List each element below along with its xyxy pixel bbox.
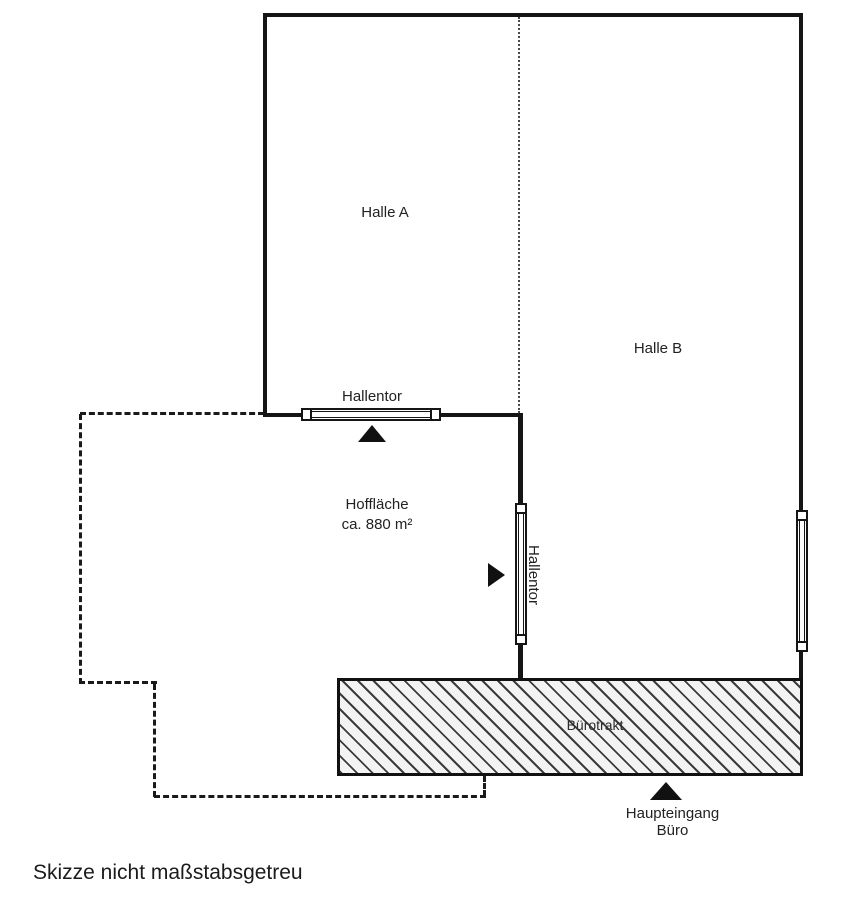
gate-cap-bottom [796, 641, 808, 652]
floor-plan-canvas: Halle A Halle B Hoffläche ca. 880 m² Hal… [0, 0, 850, 900]
courtyard-area-value: ca. 880 m² [342, 516, 413, 533]
office-wing-hatched-area: Bürotrakt [337, 678, 803, 776]
entrance-label-line1: Haupteingang [626, 805, 719, 822]
hall-divider-dotted-line [518, 17, 520, 413]
courtyard-label: Hoffläche ca. 880 m² [312, 495, 442, 535]
gate-symbol-top [301, 408, 441, 421]
property-boundary-dashed-step-v [153, 684, 156, 797]
property-boundary-dashed-bottom [154, 795, 486, 798]
courtyard-name: Hoffläche [345, 496, 408, 513]
gate-track [799, 517, 805, 645]
hallentor-top-label: Hallentor [322, 388, 422, 405]
gate-side-arrow-right-icon [488, 563, 505, 587]
gate-cap-bottom [515, 634, 527, 645]
gate-cap-top [515, 503, 527, 514]
halle-b-label: Halle B [608, 340, 708, 357]
gate-top-arrow-up-icon [358, 425, 386, 442]
entrance-label-line2: Büro [657, 822, 689, 839]
gate-cap-top [796, 510, 808, 521]
property-boundary-dashed-connector [483, 776, 486, 796]
property-boundary-dashed-left [79, 414, 82, 684]
hallentor-side-label: Hallentor [524, 530, 542, 620]
property-boundary-dashed-top [80, 412, 264, 415]
property-boundary-dashed-step-h [79, 681, 157, 684]
entrance-label: Haupteingang Büro [610, 805, 735, 839]
entrance-arrow-up-icon [650, 782, 682, 800]
wall-top [263, 13, 803, 17]
gate-symbol-halle-b-east [796, 510, 808, 652]
scale-disclaimer-text: Skizze nicht maßstabsgetreu [33, 861, 303, 885]
office-wing-label: Bürotrakt [540, 717, 650, 733]
wall-left-halle-a [263, 13, 267, 417]
gate-cap-right [430, 408, 441, 421]
halle-a-label: Halle A [335, 204, 435, 221]
gate-track [308, 411, 434, 418]
gate-cap-left [301, 408, 312, 421]
